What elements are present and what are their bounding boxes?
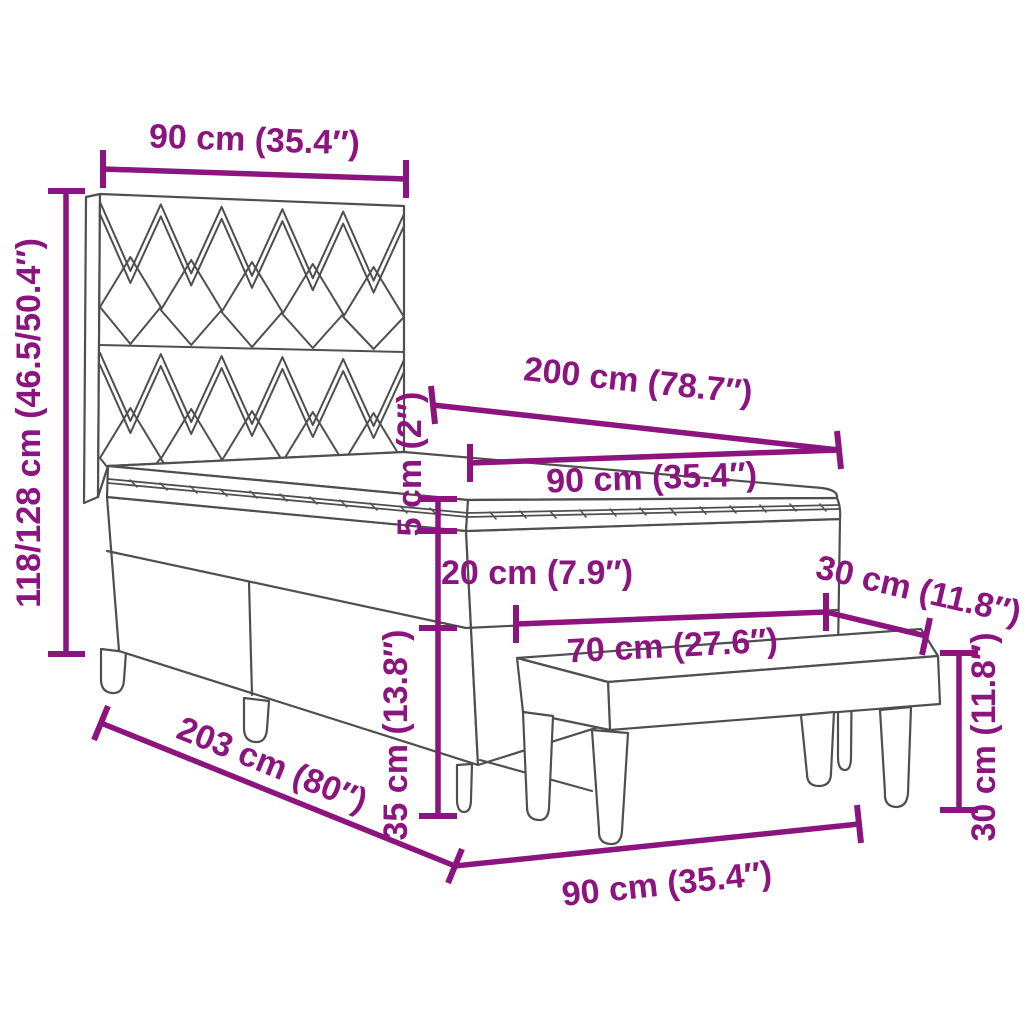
dimension-line-headboard-width [103, 169, 406, 179]
label-bench-depth: 30 cm (11.8″) [812, 548, 1024, 632]
bed-dimension-diagram: 90 cm (35.4″) 118/128 cm (46.5/50.4″) 20… [0, 0, 1024, 1024]
label-bed-width: 90 cm (35.4″) [560, 854, 774, 914]
bench-leg [801, 712, 834, 786]
diagram-canvas: 90 cm (35.4″) 118/128 cm (46.5/50.4″) 20… [0, 0, 1024, 1024]
bed-leg [101, 649, 126, 693]
bench-leg [592, 730, 628, 844]
label-topper-thickness: 5 cm (2″) [391, 392, 429, 537]
bed-leg [457, 764, 472, 812]
label-mattress-width: 90 cm (35.4″) [546, 455, 758, 500]
bench-leg [880, 707, 911, 807]
label-headboard-height: 118/128 cm (46.5/50.4″) [10, 238, 48, 608]
label-bench-height: 30 cm (11.8″) [965, 632, 1003, 841]
label-mattress-length: 200 cm (78.7″) [522, 350, 755, 412]
dimension-line-mattress-length [433, 405, 839, 450]
label-headboard-width: 90 cm (35.4″) [148, 117, 360, 162]
label-leg-height: 35 cm (13.8″) [377, 630, 415, 841]
bench-leg [523, 712, 553, 820]
label-box-height: 20 cm (7.9″) [441, 554, 633, 592]
